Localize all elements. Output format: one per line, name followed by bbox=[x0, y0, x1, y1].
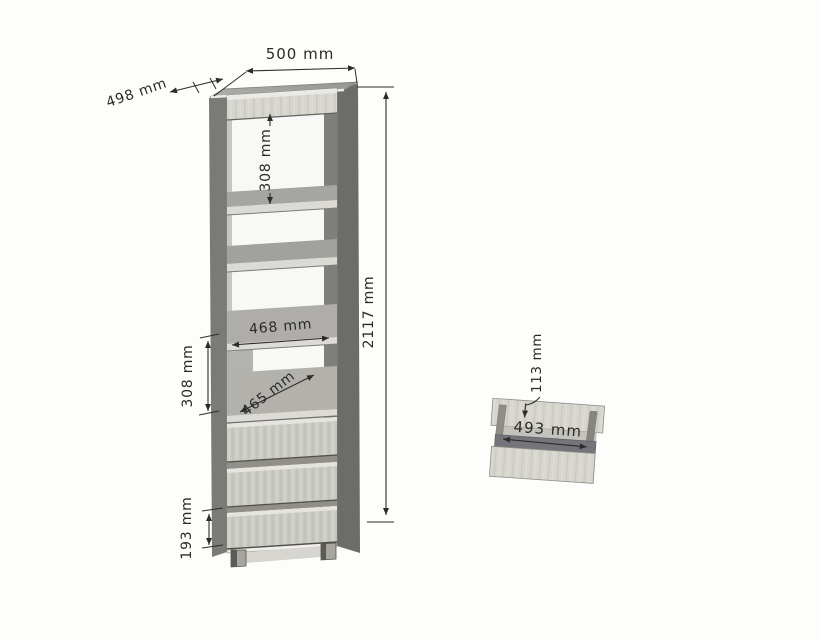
dim-height-label: 2117 mm bbox=[361, 276, 377, 349]
drawer-detail: 493 mm 113 mm bbox=[487, 333, 604, 484]
dim-shelf-spacing-lower-label: 308 mm bbox=[180, 344, 196, 407]
dim-shelf-spacing-top-label: 308 mm bbox=[258, 128, 274, 191]
dim-depth: 498 mm bbox=[104, 75, 223, 111]
dim-width-line bbox=[246, 68, 355, 71]
dim-width-ext-right bbox=[355, 69, 357, 83]
drawer-fronts bbox=[227, 417, 337, 549]
detail-inner-height-label: 113 mm bbox=[529, 333, 545, 393]
dim-height: 2117 mm bbox=[357, 87, 394, 522]
front-right-foot-side bbox=[321, 544, 326, 560]
dim-depth-tick-2 bbox=[210, 78, 216, 89]
diagram-canvas: 500 mm 498 mm 308 mm 2117 mm 468 mm bbox=[0, 0, 820, 640]
dim-depth-label: 498 mm bbox=[104, 75, 169, 111]
dim-drawer-height-label: 193 mm bbox=[179, 496, 195, 559]
drawer-detail-body: 493 mm bbox=[487, 398, 604, 484]
dim-depth-line bbox=[170, 79, 223, 92]
left-side-panel bbox=[209, 95, 227, 557]
front-left-foot-side bbox=[231, 550, 237, 567]
dim-width-label: 500 mm bbox=[266, 45, 335, 63]
right-side-panel bbox=[337, 83, 360, 553]
dim-depth-tick-1 bbox=[193, 82, 199, 93]
furniture-dimension-diagram: 500 mm 498 mm 308 mm 2117 mm 468 mm bbox=[0, 0, 820, 640]
